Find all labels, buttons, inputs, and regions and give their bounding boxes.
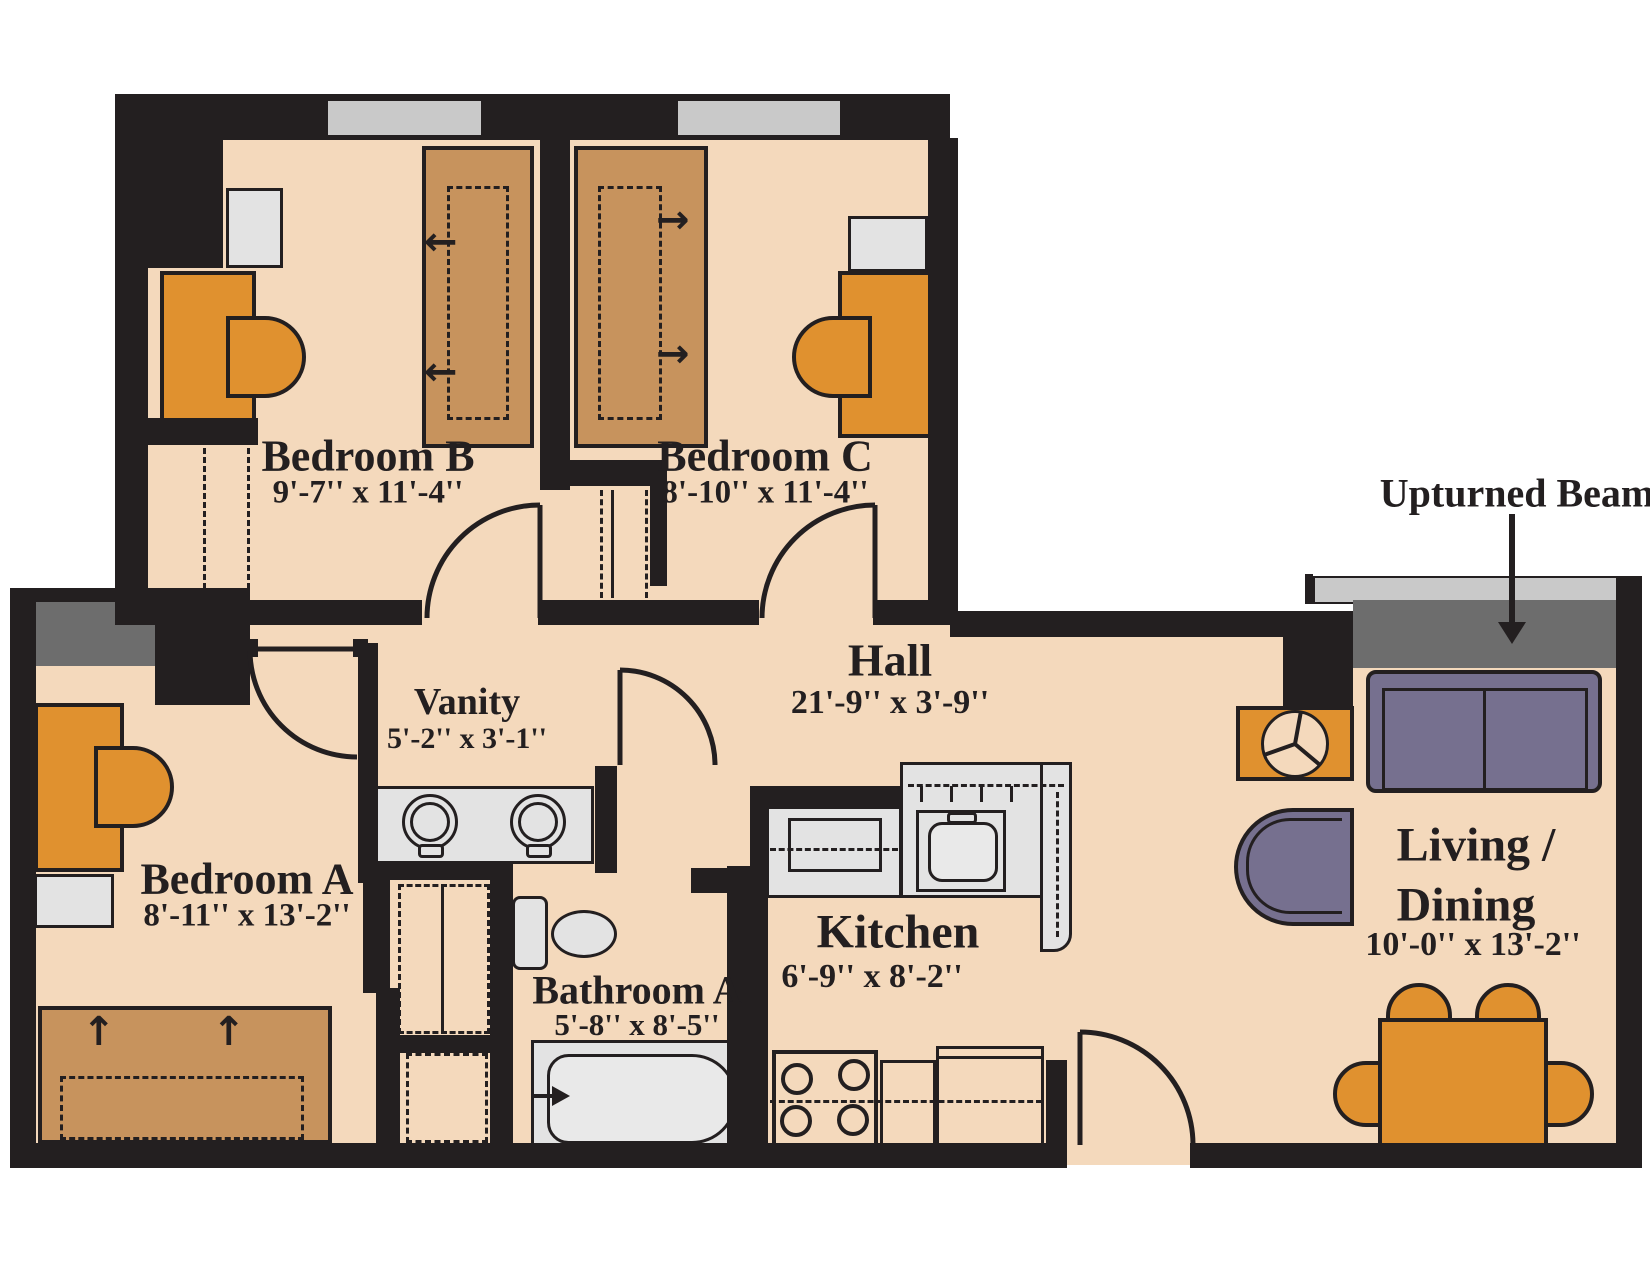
wall-segment	[358, 643, 378, 883]
upper-cabinet-tick	[950, 786, 953, 802]
room-label-vanity: Vanity	[414, 680, 520, 724]
upper-cabinet-tick	[920, 786, 923, 802]
door-jamb	[243, 639, 258, 657]
window-bedroom-c	[675, 98, 843, 138]
toilet-tank	[512, 896, 548, 970]
closet-b-bifold-door	[247, 448, 250, 598]
wall-segment	[10, 588, 157, 602]
dresser-bedroom-a	[34, 874, 114, 928]
upturned-beam-arrow-shaft	[1509, 514, 1515, 624]
wall-segment	[10, 588, 36, 1168]
bed-c-dashed-outline	[598, 186, 662, 420]
door-jamb	[353, 639, 368, 657]
room-dims-living-dining: 10'-0'' x 13'-2''	[1365, 926, 1580, 964]
upturned-beam-label: Upturned Beam	[1380, 470, 1650, 517]
bed-move-arrow-right-icon: →	[656, 334, 690, 374]
chair-bedroom-c	[792, 316, 872, 398]
wall-segment	[1305, 574, 1313, 604]
closet-b-bifold-door	[203, 448, 206, 598]
wall-segment	[148, 138, 223, 268]
window-bedroom-b	[325, 98, 484, 138]
wall-segment	[540, 138, 570, 490]
bathtub	[547, 1054, 737, 1144]
wall-segment	[538, 600, 759, 625]
upper-cabinet-tick	[980, 786, 983, 802]
stove-burner	[780, 1105, 812, 1137]
kitchen-sink	[928, 822, 998, 882]
wall-segment	[376, 988, 400, 1148]
closet-c-bifold-door	[645, 490, 648, 598]
wall-segment	[595, 766, 617, 873]
dining-table	[1378, 1018, 1548, 1150]
wall-segment	[1190, 1143, 1642, 1168]
chair-bedroom-b	[226, 316, 306, 398]
room-label-living-dining-1: Living /	[1397, 818, 1556, 873]
room-dims-bedroom-a: 8'-11'' x 13'-2''	[143, 898, 350, 935]
closet-c-bifold-door	[600, 490, 603, 598]
hall-closet-upper	[398, 884, 490, 1034]
wall-segment	[1283, 611, 1353, 706]
hall-closet-divider	[441, 884, 444, 1034]
upturned-beam	[1353, 600, 1617, 668]
wall-segment	[10, 1143, 1067, 1168]
wall-segment	[155, 588, 250, 705]
bed-move-arrow-left-icon: ←	[424, 352, 458, 392]
dresser-bedroom-b	[226, 188, 283, 268]
room-dims-kitchen: 6'-9'' x 8'-2''	[781, 958, 962, 996]
closet-c-divider	[611, 490, 614, 598]
room-dims-vanity: 5'-2'' x 3'-1''	[387, 722, 547, 756]
sofa-cushion-divider	[1483, 690, 1486, 789]
room-dims-bedroom-b: 9'-7'' x 11'-4''	[273, 475, 464, 512]
stove-burner	[838, 1059, 870, 1091]
bed-a-dashed-outline	[60, 1076, 304, 1140]
room-dims-hall: 21'-9'' x 3'-9''	[791, 684, 989, 722]
floor-plan: ← ← → → ↑ ↑	[0, 0, 1650, 1275]
room-dims-bathroom-a: 5'-8'' x 8'-5''	[554, 1007, 719, 1043]
dresser-bedroom-c	[848, 216, 928, 272]
hall-closet-lower	[406, 1053, 488, 1143]
stove-burner	[837, 1104, 869, 1136]
wall-segment	[148, 418, 258, 445]
room-label-hall: Hall	[848, 634, 932, 687]
upper-cabinet-tick	[1040, 786, 1043, 802]
vanity-faucet-left	[418, 844, 444, 858]
wall-segment	[750, 786, 768, 1148]
base-counter-edge	[939, 1056, 1041, 1059]
kitchen-faucet	[947, 812, 977, 824]
base-counter-right	[936, 1046, 1044, 1148]
floor-entry	[1060, 630, 1250, 1165]
vanity-faucet-right	[526, 844, 552, 858]
toilet-bowl	[551, 910, 617, 958]
base-counter-dash	[770, 1100, 1042, 1103]
vanity-sink-left-basin	[410, 802, 450, 842]
armchair-seat	[1246, 818, 1342, 914]
wall-segment	[490, 871, 513, 1148]
wall-segment	[750, 786, 902, 808]
wall-segment	[928, 138, 958, 625]
wall-segment	[115, 94, 148, 625]
chair-bedroom-a	[94, 746, 174, 828]
wall-segment	[1046, 1060, 1067, 1148]
wall-segment	[363, 861, 513, 880]
stove-burner	[781, 1063, 813, 1095]
wall-segment	[691, 868, 727, 893]
wall-segment	[1616, 576, 1642, 1168]
upper-cabinet-dash-right	[1056, 792, 1059, 937]
bed-move-arrow-up-icon: ↑	[212, 1012, 246, 1052]
room-dims-bedroom-c: 8'-10'' x 11'-4''	[661, 475, 868, 512]
bed-move-arrow-left-icon: ←	[424, 222, 458, 262]
room-label-kitchen: Kitchen	[817, 905, 980, 960]
base-counter-mid	[880, 1060, 936, 1148]
bed-move-arrow-up-icon: ↑	[82, 1012, 116, 1052]
bed-move-arrow-right-icon: →	[656, 200, 690, 240]
refrigerator-inner	[788, 818, 882, 872]
upper-cabinet-tick	[1010, 786, 1013, 802]
wall-segment	[565, 460, 667, 486]
side-table-top	[1261, 710, 1329, 778]
upturned-beam-arrow-head-icon	[1498, 622, 1526, 644]
wall-segment	[363, 871, 390, 993]
room-label-living-dining-2: Dining	[1397, 878, 1536, 933]
vanity-sink-right-basin	[518, 802, 558, 842]
refrigerator-dash	[770, 848, 898, 851]
